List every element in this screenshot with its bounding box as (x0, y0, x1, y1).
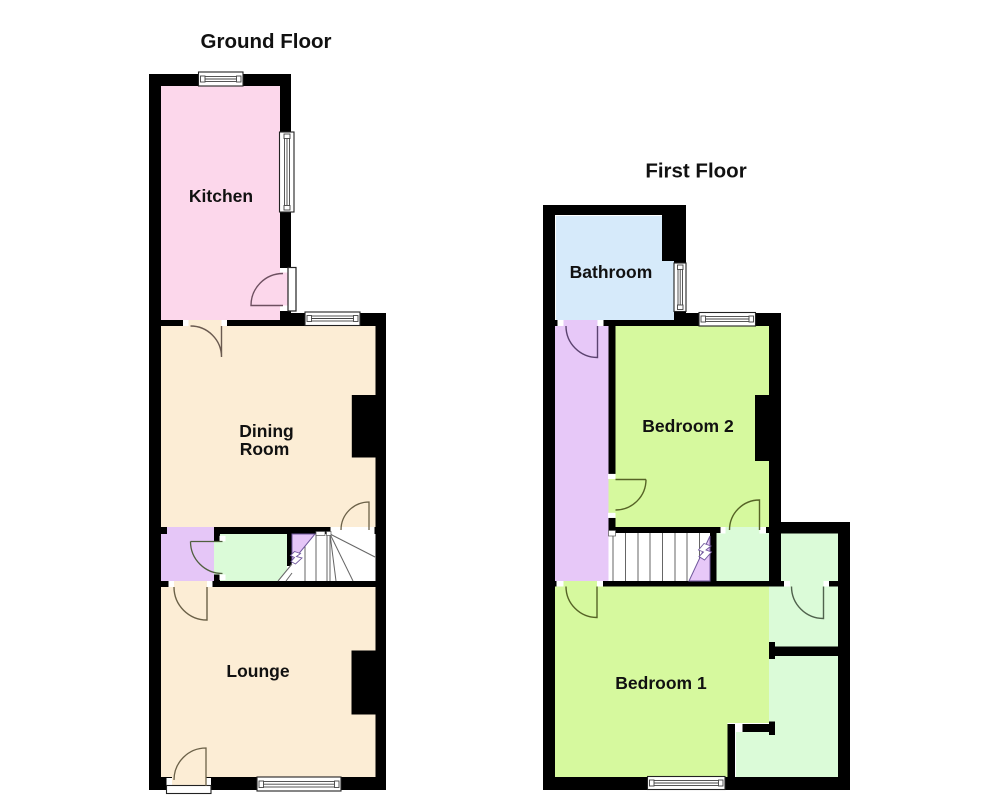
svg-text:Room: Room (240, 439, 290, 459)
svg-text:Bathroom: Bathroom (570, 262, 653, 282)
svg-text:Bedroom 1: Bedroom 1 (615, 673, 707, 693)
svg-text:Bedroom 2: Bedroom 2 (642, 416, 734, 436)
svg-text:First Floor: First Floor (645, 160, 746, 183)
svg-text:Lounge: Lounge (226, 661, 289, 681)
svg-text:Ground Floor: Ground Floor (201, 30, 332, 53)
svg-text:Kitchen: Kitchen (189, 186, 253, 206)
svg-text:Dining: Dining (239, 421, 293, 441)
